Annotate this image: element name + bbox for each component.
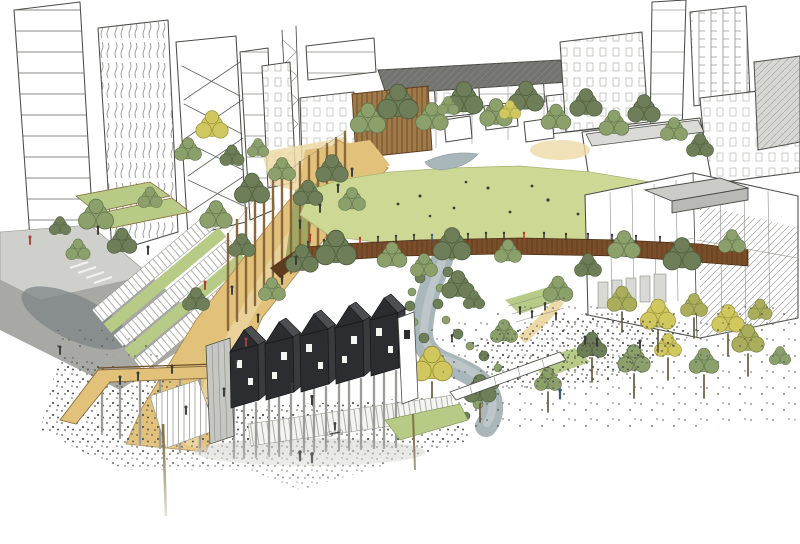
pavilion-end-panel	[398, 312, 418, 404]
masterplan-sketch: Artist's impression - urban park and wat…	[0, 0, 800, 544]
playground-path	[530, 140, 590, 160]
sketch-illustration: Artist's impression - urban park and wat…	[0, 0, 800, 544]
paper-fade	[0, 410, 800, 544]
